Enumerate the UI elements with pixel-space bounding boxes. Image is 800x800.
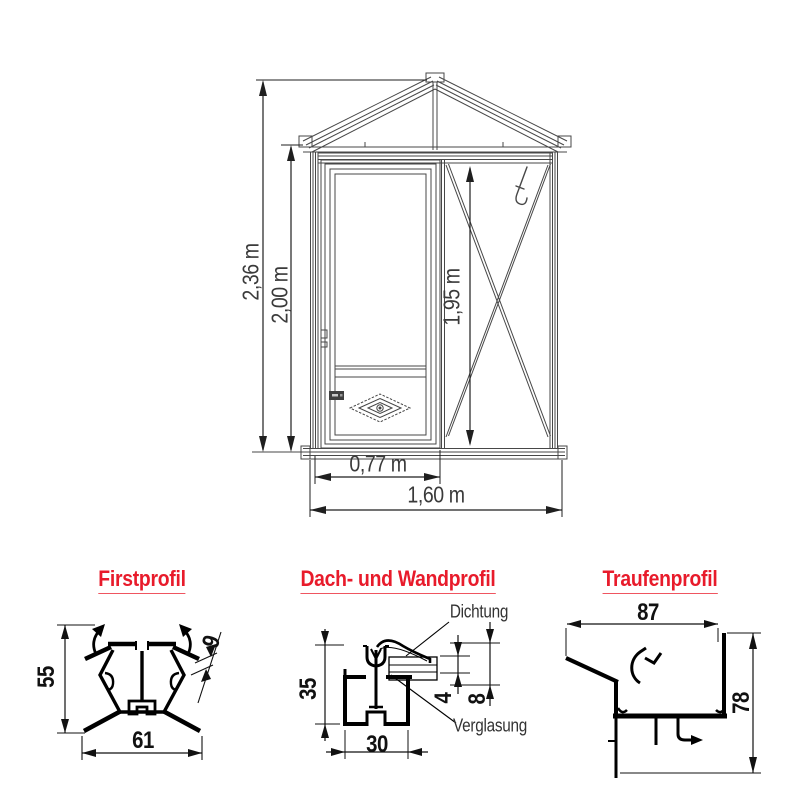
door-lock bbox=[321, 330, 327, 338]
seal-label: Dichtung bbox=[450, 602, 508, 623]
ridge-width-label: 61 bbox=[132, 727, 154, 755]
seal-leader-line bbox=[406, 622, 449, 656]
drawing-canvas-svg bbox=[0, 0, 800, 800]
greenhouse-elevation bbox=[252, 73, 571, 459]
ridge-profile-title: Firstprofil bbox=[98, 566, 185, 594]
eaves-height-label: 78 bbox=[728, 692, 756, 714]
header-band bbox=[318, 153, 552, 163]
dim-total-width-label: 1,60 m bbox=[407, 482, 464, 509]
dim-side-height-label: 2,00 m bbox=[267, 266, 294, 323]
glazing-single-label: 4 bbox=[430, 693, 458, 704]
dim-door-width-label: 0,77 m bbox=[349, 451, 406, 478]
roof-gable bbox=[299, 73, 571, 152]
dim-door-height bbox=[466, 166, 474, 446]
brand-diamond-logo bbox=[350, 394, 410, 422]
roof-wall-width-label: 30 bbox=[366, 731, 388, 759]
ridge-profile-drawing bbox=[84, 624, 200, 731]
eaves-profile-title: Traufenprofil bbox=[603, 566, 718, 594]
technical-drawing-page: 2,36 m 2,00 m 1,95 m 0,77 m 1,60 m First… bbox=[0, 0, 800, 800]
elevation-dimensions bbox=[256, 80, 562, 517]
roof-wall-height-label: 35 bbox=[295, 678, 323, 700]
eave-beam bbox=[303, 142, 567, 152]
eaves-profile-drawing bbox=[566, 633, 727, 778]
brace-hook bbox=[516, 167, 527, 204]
roof-wall-profile-drawing bbox=[343, 622, 456, 726]
ridge-cap bbox=[426, 73, 444, 82]
dim-door-height-label: 1,95 m bbox=[439, 268, 466, 325]
dim-total-height-label: 2,36 m bbox=[238, 243, 265, 300]
glazing-double-label: 8 bbox=[464, 694, 492, 705]
eaves-width-label: 87 bbox=[637, 599, 659, 627]
ridge-height-label: 55 bbox=[33, 666, 61, 688]
door bbox=[321, 160, 440, 448]
wall-posts bbox=[311, 152, 558, 448]
glazing-label: Verglasung bbox=[453, 716, 527, 737]
roof-wall-profile-title: Dach- und Wandprofil bbox=[300, 566, 495, 594]
gutter-clip bbox=[632, 648, 646, 683]
